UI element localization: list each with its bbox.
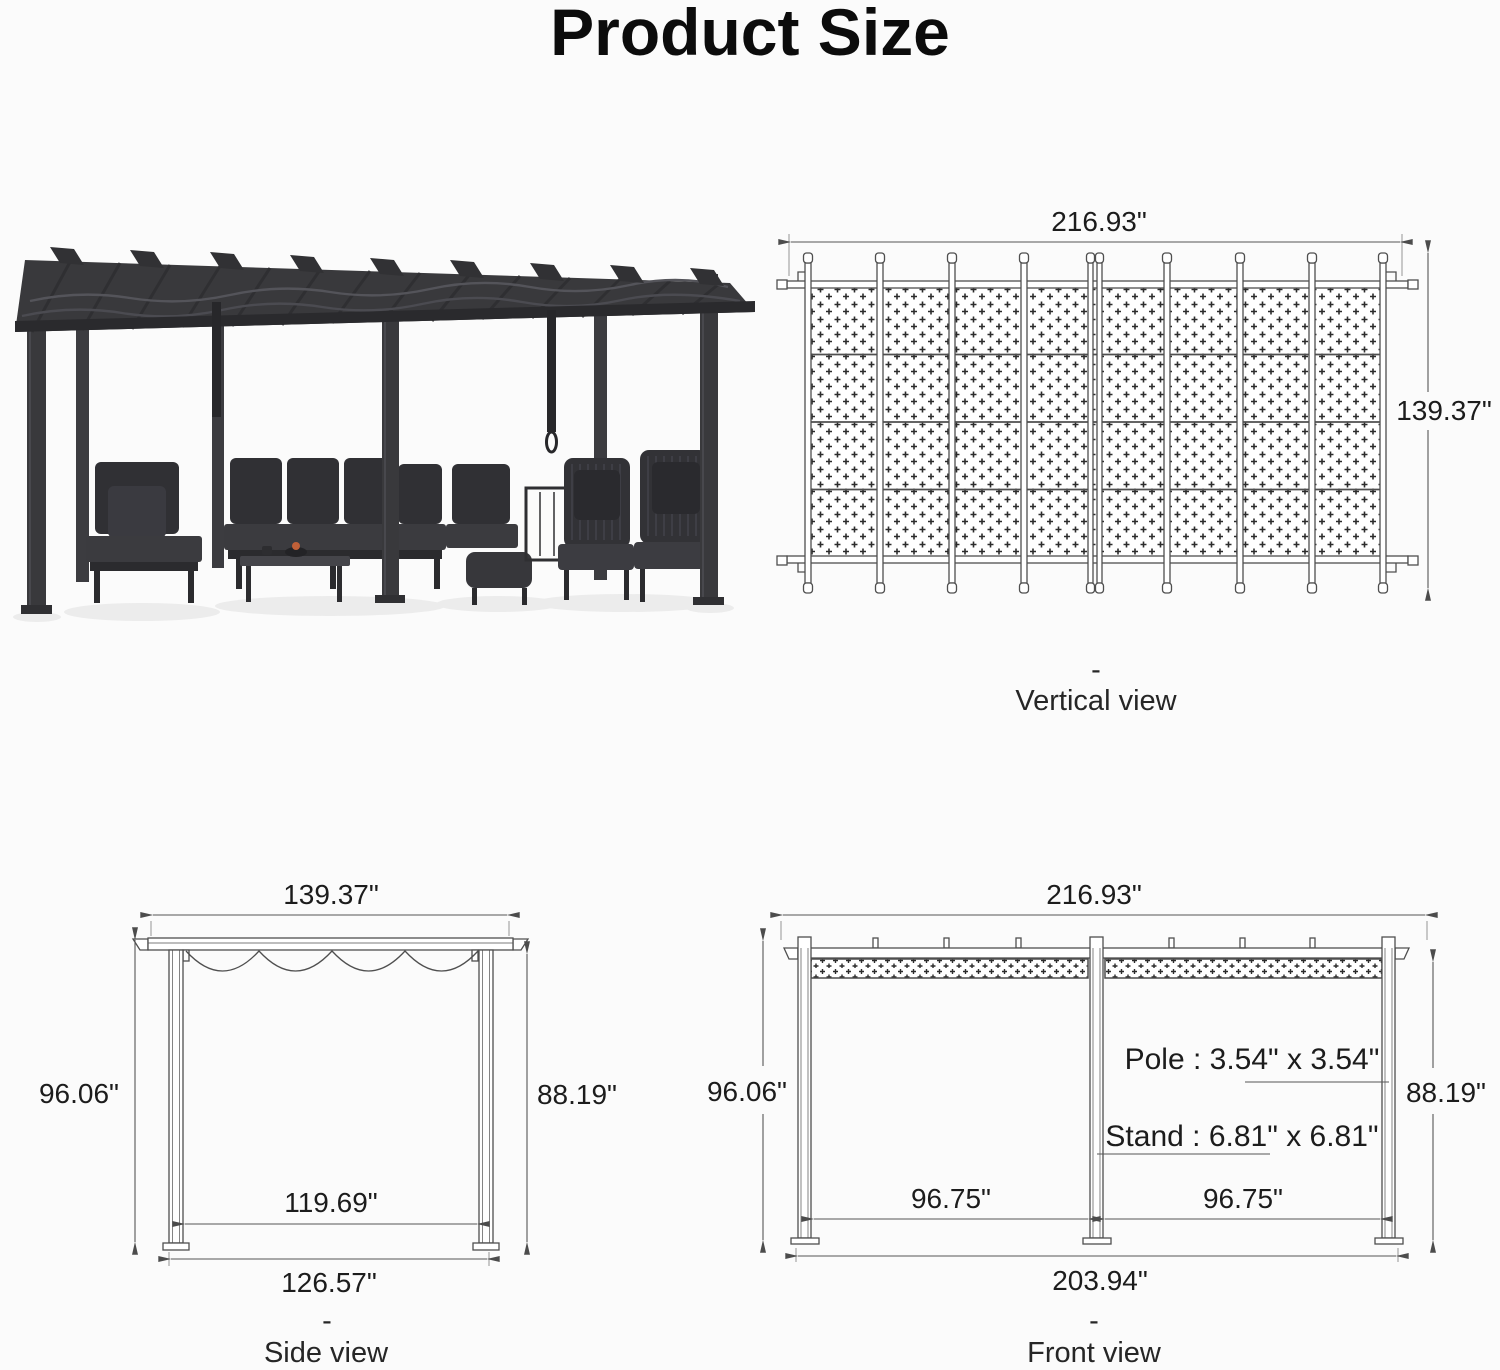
pergola-product-render: [13, 247, 755, 622]
front-view-right-height-label: 88.19": [1406, 1077, 1486, 1108]
product-size-sheet: Product Size: [0, 0, 1500, 1370]
front-view-left-bay-label: 96.75": [911, 1183, 991, 1214]
vertical-view-separator: -: [1091, 654, 1101, 686]
post-foot: [1083, 1238, 1111, 1244]
canopy-panel: [808, 287, 1383, 557]
side-view-base-width-label: 126.57": [281, 1267, 377, 1298]
sofa-middle: [224, 458, 446, 589]
front-posts: [791, 937, 1403, 1244]
candle-flame: [292, 542, 300, 550]
side-view-caption: Side view: [264, 1337, 389, 1369]
vertical-view-caption: Vertical view: [1015, 685, 1177, 717]
side-view: 139.37": [39, 879, 617, 1369]
front-view-separator: -: [1089, 1305, 1099, 1337]
post-foot: [163, 1243, 189, 1250]
front-view-right-bay-label: 96.75": [1203, 1183, 1283, 1214]
post-foot: [473, 1243, 499, 1250]
pergola-roof: [15, 247, 755, 332]
side-view-top-width-label: 139.37": [283, 879, 379, 910]
side-beam: [133, 938, 528, 950]
size-diagram-canvas: 216.93": [0, 0, 1500, 1370]
front-view: 216.93": [707, 879, 1486, 1369]
canopy-scallops: [183, 950, 478, 971]
side-view-right-height-label: 88.19": [537, 1079, 617, 1110]
side-view-left-height-label: 96.06": [39, 1078, 119, 1109]
vertical-view-height-label: 139.37": [1396, 395, 1492, 426]
stand-spec-label: Stand : 6.81" x 6.81": [1105, 1120, 1378, 1153]
armchairs-right: [526, 450, 714, 602]
front-view-left-height-label: 96.06": [707, 1076, 787, 1107]
side-view-inner-width-label: 119.69": [284, 1187, 378, 1218]
sofa-left-module: [86, 462, 202, 603]
pole-spec-label: Pole : 3.54" x 3.54": [1125, 1043, 1380, 1076]
front-view-top-width-label: 216.93": [1046, 879, 1142, 910]
side-view-separator: -: [322, 1305, 332, 1337]
front-view-caption: Front view: [1027, 1337, 1162, 1369]
post-foot: [1375, 1238, 1403, 1244]
vertical-view-width-label: 216.93": [1051, 206, 1147, 237]
vertical-view: 216.93": [777, 206, 1492, 717]
front-view-base-width-label: 203.94": [1052, 1265, 1148, 1296]
seat-and-ottoman: [446, 464, 532, 605]
post-foot: [791, 1238, 819, 1244]
